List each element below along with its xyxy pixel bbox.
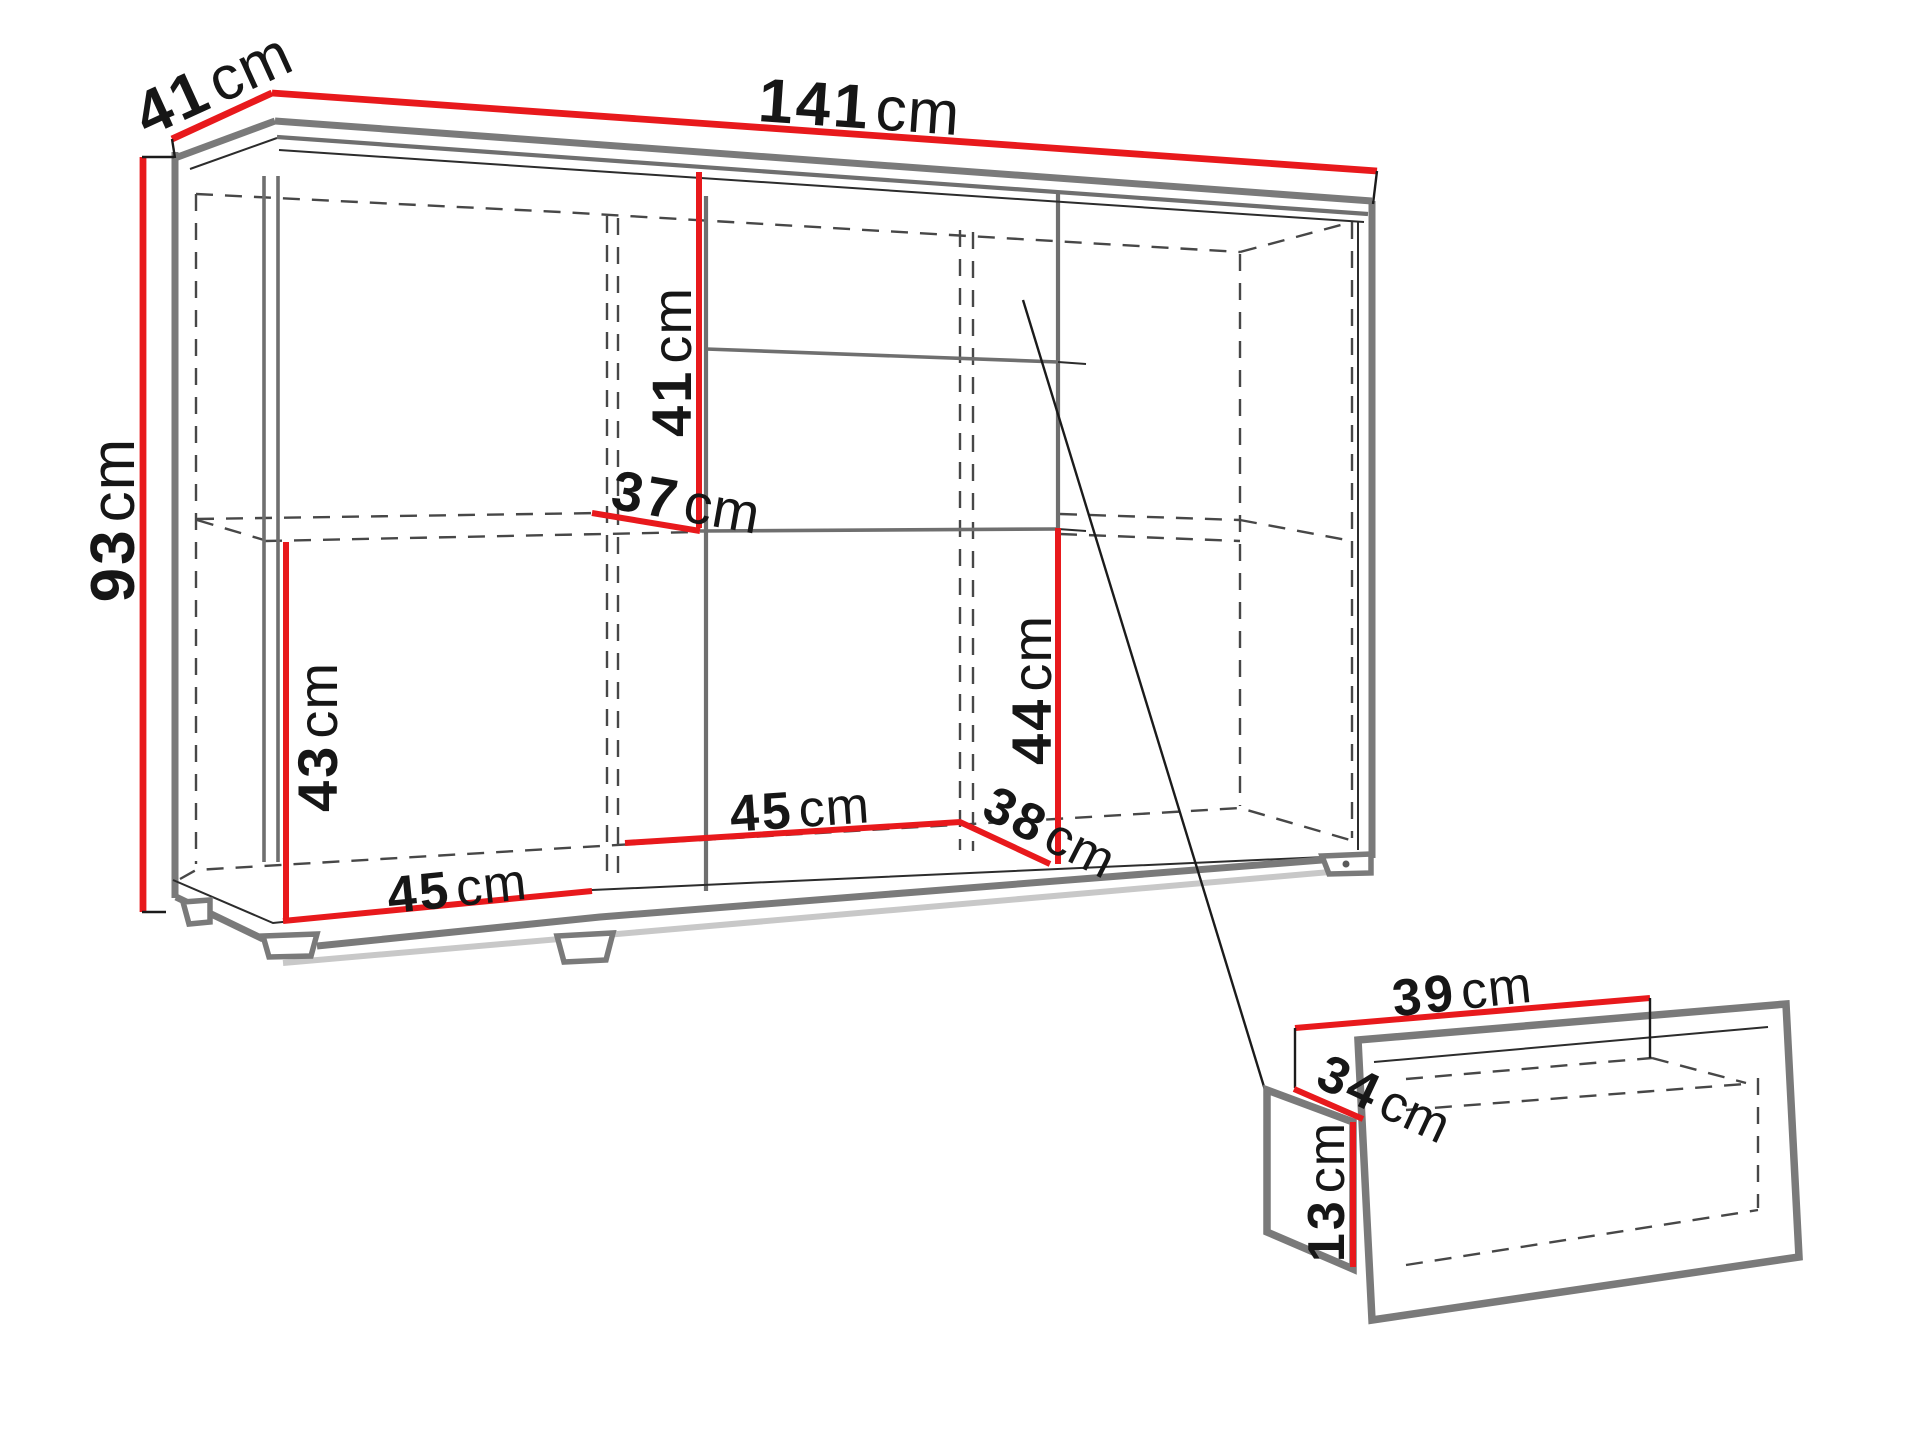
dim-label-drawer-height: 13cm: [1298, 1122, 1356, 1262]
dashed-line: [1060, 514, 1240, 520]
foot-back-left: [183, 900, 210, 924]
dashed-line: [197, 520, 264, 540]
dim-label-lower-left-height: 43cm: [286, 662, 349, 812]
dashed-line: [1060, 534, 1240, 541]
dim-label-top-width: 141cm: [756, 66, 962, 149]
dashed-line: [1240, 520, 1352, 541]
dim-label-left-section-width: 45cm: [384, 853, 529, 925]
diagram-canvas: 41cm 141cm 93cm 41cm 37cm 43cm 45cm 45cm…: [0, 0, 1912, 1434]
dim-label-middle-section-width: 45cm: [728, 776, 872, 844]
middle-shelf-edge-ext: [1058, 529, 1086, 531]
drawer-front-panel: [1358, 1004, 1799, 1320]
foot-screw-dot: [1343, 861, 1350, 868]
dim-label-shelf-depth: 37cm: [607, 458, 766, 546]
dim-label-top-depth: 41cm: [124, 19, 302, 150]
top-left-inner-line: [190, 138, 277, 169]
upper-shelf-edge: [706, 349, 1058, 362]
cabinet-hidden-edges: [180, 194, 1352, 879]
dashed-line: [1240, 222, 1352, 252]
top-slab-bottom-edge: [277, 137, 1368, 214]
dim-label-drawer-width: 39cm: [1389, 956, 1534, 1028]
dimension-labels: 41cm 141cm 93cm 41cm 37cm 43cm 45cm 45cm…: [79, 19, 1535, 1262]
foot-front-middle: [557, 933, 613, 962]
dim-label-lower-right-height: 44cm: [1000, 615, 1063, 765]
upper-shelf-edge-ext: [1058, 362, 1086, 364]
dim-tick: [1373, 171, 1377, 204]
dashed-line: [197, 513, 600, 519]
cabinet-interior: [190, 138, 1364, 891]
furniture-dimension-diagram: 41cm 141cm 93cm 41cm 37cm 43cm 45cm 45cm…: [0, 0, 1912, 1434]
foot-front-left: [263, 934, 317, 957]
dim-label-upper-compartment: 41cm: [640, 287, 703, 437]
dim-label-left-height: 93cm: [79, 438, 148, 603]
dim-label-bottom-depth: 38cm: [974, 775, 1125, 890]
dashed-line: [265, 532, 698, 541]
